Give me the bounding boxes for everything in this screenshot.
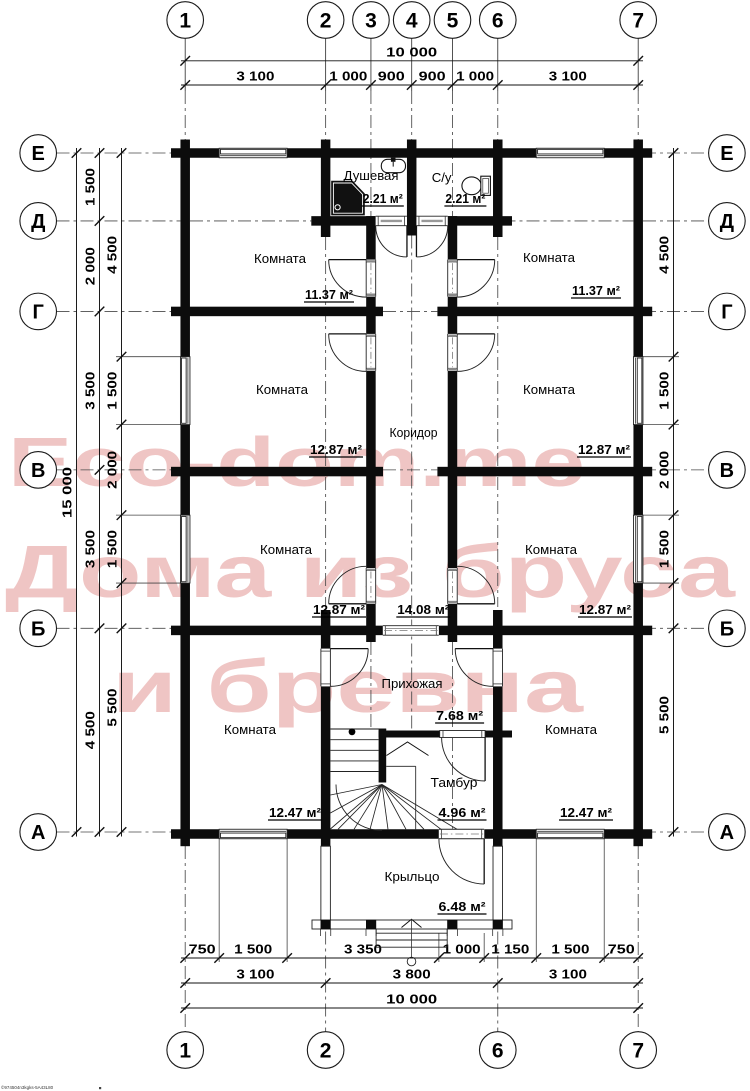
svg-text:Е: Е bbox=[720, 143, 733, 165]
svg-text:2: 2 bbox=[320, 1039, 332, 1062]
svg-text:Крыльцо: Крыльцо bbox=[385, 869, 440, 884]
svg-text:900: 900 bbox=[419, 70, 446, 84]
svg-text:2.21 м²: 2.21 м² bbox=[445, 191, 486, 206]
svg-text:750: 750 bbox=[608, 943, 635, 957]
svg-text:Eco-dom.me: Eco-dom.me bbox=[8, 423, 585, 501]
svg-text:©974504n3kgks-5A43L80: ©974504n3kgks-5A43L80 bbox=[1, 1084, 54, 1090]
svg-text:Г: Г bbox=[33, 301, 44, 323]
svg-text:2 000: 2 000 bbox=[83, 247, 97, 285]
svg-text:В: В bbox=[720, 460, 734, 482]
svg-text:1: 1 bbox=[179, 1039, 191, 1062]
svg-text:1: 1 bbox=[179, 9, 191, 32]
svg-text:Тамбур: Тамбур bbox=[431, 775, 478, 790]
svg-text:12.47 м²: 12.47 м² bbox=[269, 805, 322, 820]
svg-text:3 100: 3 100 bbox=[549, 968, 587, 982]
svg-text:Коридор: Коридор bbox=[390, 425, 438, 440]
svg-text:6.48 м²: 6.48 м² bbox=[439, 899, 487, 914]
svg-text:2.21 м²: 2.21 м² bbox=[363, 191, 404, 206]
svg-text:Прихожая: Прихожая bbox=[382, 676, 443, 691]
svg-text:5 500: 5 500 bbox=[106, 689, 120, 727]
svg-text:4.96 м²: 4.96 м² bbox=[439, 805, 487, 820]
svg-text:3 500: 3 500 bbox=[83, 530, 97, 568]
svg-text:4 500: 4 500 bbox=[657, 236, 671, 274]
svg-text:5 500: 5 500 bbox=[658, 696, 672, 734]
svg-text:Б: Б bbox=[31, 618, 45, 640]
svg-text:14.08 м²: 14.08 м² bbox=[397, 602, 450, 617]
svg-text:1 500: 1 500 bbox=[83, 168, 97, 206]
svg-text:1 000: 1 000 bbox=[443, 943, 481, 957]
svg-text:Е: Е bbox=[32, 143, 45, 165]
svg-text:3 500: 3 500 bbox=[83, 372, 97, 410]
svg-text:3 100: 3 100 bbox=[236, 968, 274, 982]
svg-text:7: 7 bbox=[632, 9, 644, 32]
svg-text:Д: Д bbox=[720, 211, 734, 233]
svg-text:12.87 м²: 12.87 м² bbox=[579, 602, 632, 617]
svg-text:1 500: 1 500 bbox=[234, 943, 272, 957]
svg-text:Комната: Комната bbox=[525, 542, 578, 557]
svg-text:1 500: 1 500 bbox=[105, 372, 119, 410]
svg-text:4: 4 bbox=[406, 9, 418, 32]
svg-text:2 000: 2 000 bbox=[657, 451, 671, 489]
svg-text:4 500: 4 500 bbox=[83, 711, 97, 749]
svg-text:2: 2 bbox=[320, 9, 332, 32]
svg-text:Б: Б bbox=[720, 618, 734, 640]
svg-text:10 000: 10 000 bbox=[386, 993, 437, 1007]
svg-text:7.68 м²: 7.68 м² bbox=[436, 708, 484, 723]
svg-text:5: 5 bbox=[447, 9, 459, 32]
svg-text:1 500: 1 500 bbox=[551, 943, 589, 957]
svg-text:12.47 м²: 12.47 м² bbox=[560, 805, 613, 820]
svg-text:7: 7 bbox=[632, 1039, 644, 1062]
svg-text:3 800: 3 800 bbox=[393, 968, 431, 982]
svg-text:С/у: С/у bbox=[432, 170, 452, 185]
svg-text:12.87 м²: 12.87 м² bbox=[578, 442, 631, 457]
svg-text:Душевая: Душевая bbox=[344, 168, 399, 183]
svg-text:6: 6 bbox=[492, 1039, 504, 1062]
svg-text:Д: Д bbox=[31, 211, 45, 233]
svg-text:10 000: 10 000 bbox=[386, 46, 437, 60]
svg-text:Комната: Комната bbox=[256, 382, 309, 397]
svg-text:Комната: Комната bbox=[545, 722, 598, 737]
svg-text:3 100: 3 100 bbox=[236, 70, 274, 84]
svg-text:11.37 м²: 11.37 м² bbox=[572, 283, 621, 298]
svg-text:3: 3 bbox=[365, 9, 377, 32]
svg-text:1 150: 1 150 bbox=[491, 943, 529, 957]
svg-text:Комната: Комната bbox=[523, 382, 576, 397]
svg-text:В: В bbox=[31, 460, 45, 482]
svg-text:А: А bbox=[720, 822, 734, 844]
svg-text:4 500: 4 500 bbox=[105, 236, 119, 274]
svg-text:Комната: Комната bbox=[224, 722, 277, 737]
svg-text:1 500: 1 500 bbox=[657, 530, 671, 568]
svg-text:11.37 м²: 11.37 м² bbox=[305, 287, 354, 302]
svg-text:6: 6 bbox=[492, 9, 504, 32]
svg-text:Комната: Комната bbox=[254, 251, 307, 266]
svg-text:Г: Г bbox=[721, 301, 732, 323]
svg-text:Комната: Комната bbox=[260, 542, 313, 557]
svg-text:А: А bbox=[31, 822, 45, 844]
svg-text:1 000: 1 000 bbox=[329, 70, 367, 84]
svg-text:750: 750 bbox=[189, 943, 216, 957]
svg-text:3 100: 3 100 bbox=[549, 70, 587, 84]
svg-text:1 000: 1 000 bbox=[456, 70, 494, 84]
svg-text:900: 900 bbox=[378, 70, 405, 84]
svg-text:1 500: 1 500 bbox=[657, 372, 671, 410]
svg-text:2 000: 2 000 bbox=[105, 451, 119, 489]
svg-text:1 500: 1 500 bbox=[105, 530, 119, 568]
svg-text:12.87 м²: 12.87 м² bbox=[310, 442, 363, 457]
svg-text:15 000: 15 000 bbox=[61, 467, 75, 518]
svg-text:12.87 м²: 12.87 м² bbox=[313, 602, 366, 617]
svg-text:Комната: Комната bbox=[523, 250, 576, 265]
